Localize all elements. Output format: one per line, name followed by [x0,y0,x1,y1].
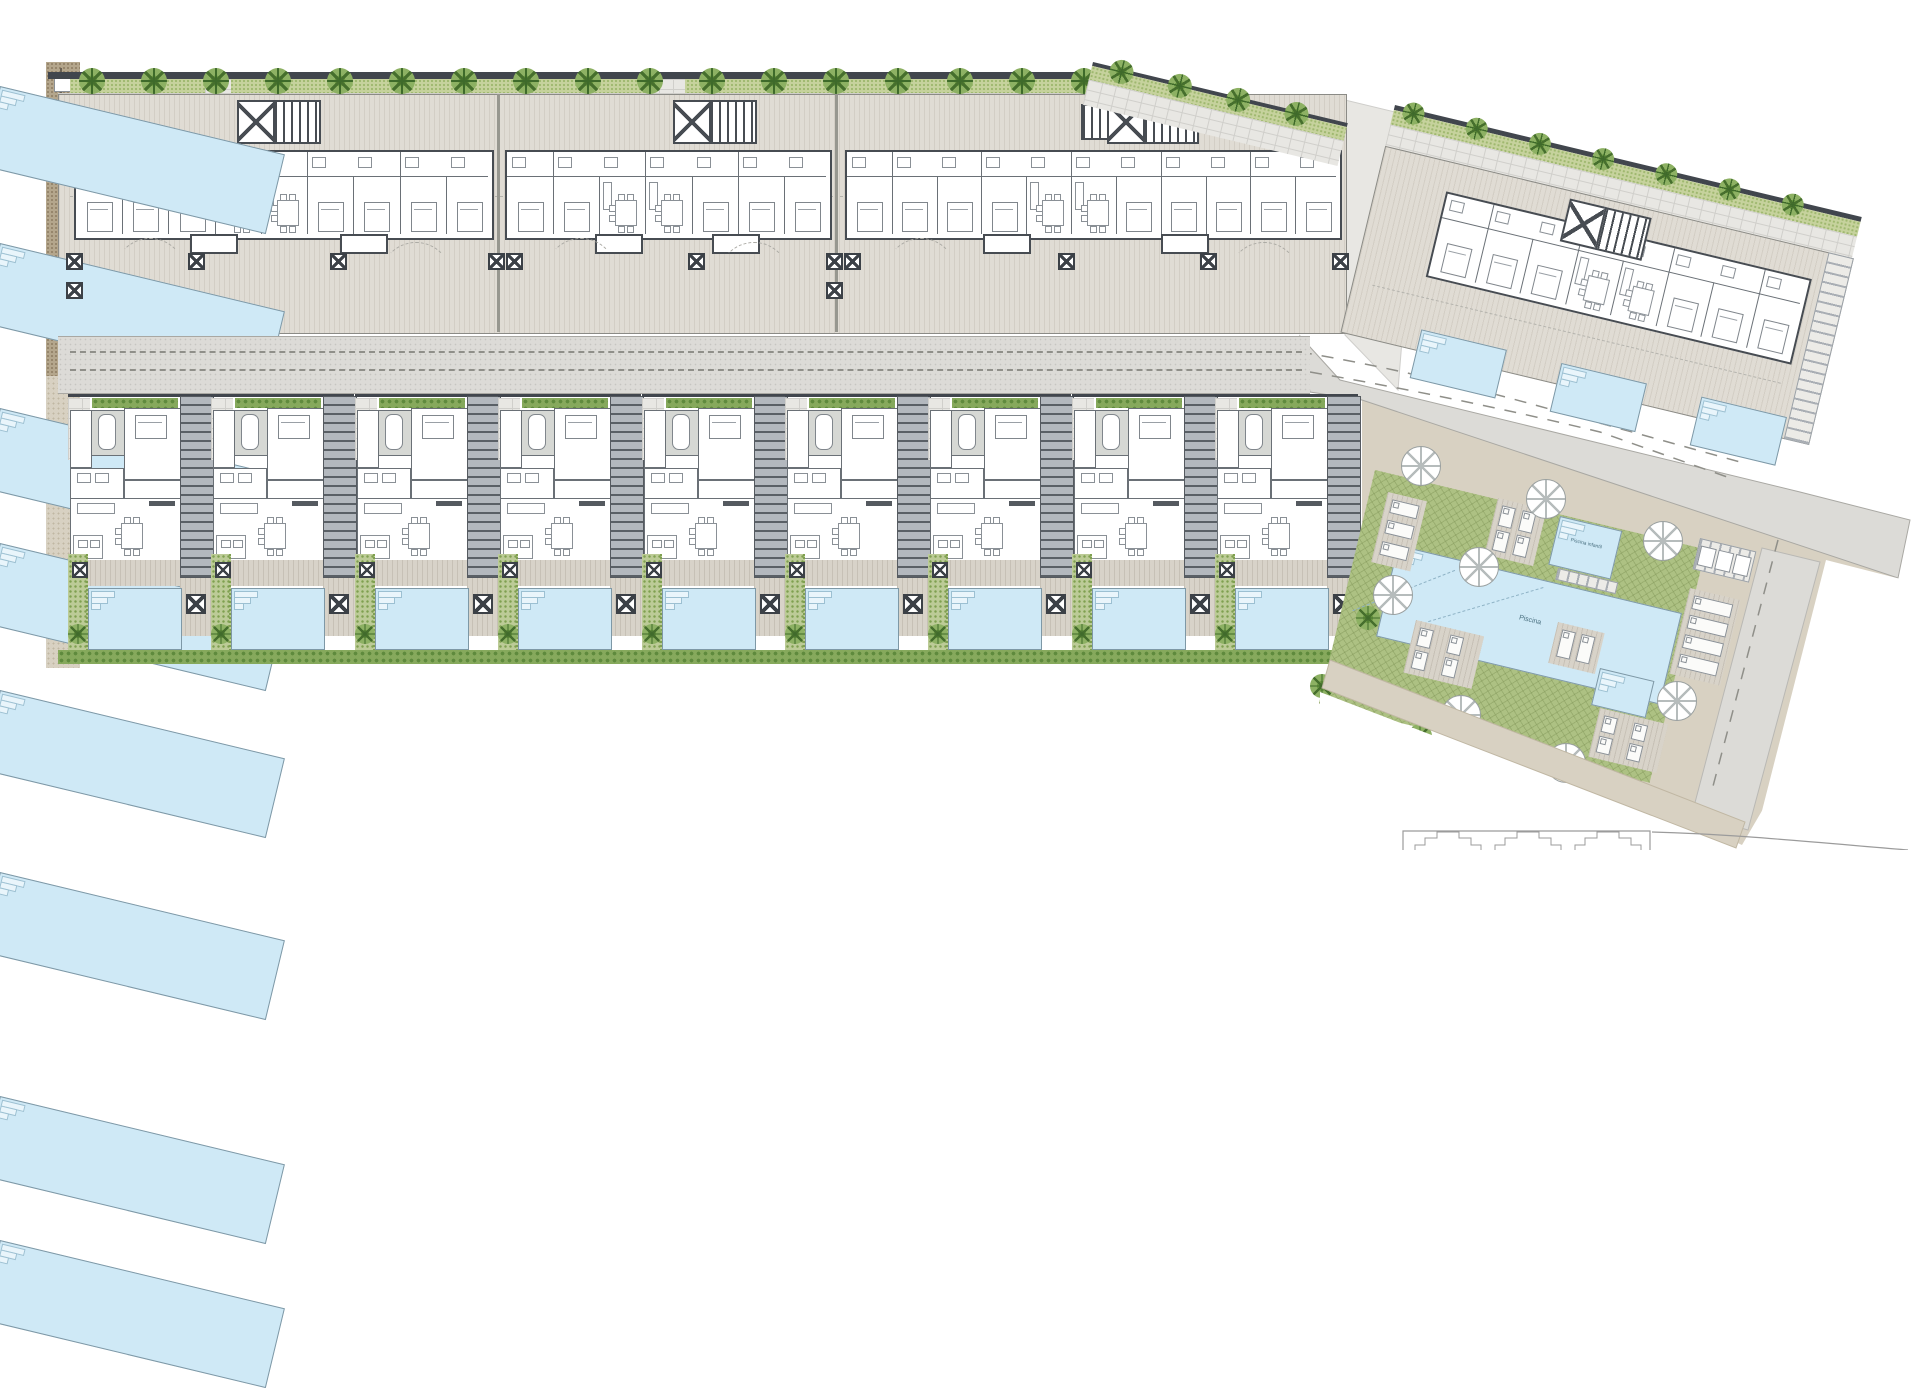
lounger-pillow [1582,636,1589,643]
palm-tree-icon [1310,674,1334,698]
palm-tree-icon [885,68,911,94]
living-bump [1161,234,1209,254]
sofa-icon [937,503,975,514]
pool-steps [1699,412,1710,421]
townhouse-unit-5 [642,394,785,668]
townhouse-pool [88,588,182,650]
sink-icon [508,540,518,548]
palm-tree-icon [575,68,601,94]
bath-fixture [942,157,956,168]
bedroom [1128,408,1188,480]
outdoor-shower [760,594,780,614]
tv-unit [1296,501,1322,506]
bed-pillow [568,418,592,423]
sink-icon [795,540,805,548]
chair-icon [554,549,561,556]
interior-wall [1250,152,1251,234]
column-marker [688,253,705,270]
chair-icon [276,549,283,556]
sofa-icon [220,503,258,514]
pool-steps [951,603,961,610]
bench-icon [1697,546,1717,569]
column-marker [826,282,843,299]
chair-icon [1119,528,1126,535]
chair-icon [655,215,662,222]
chair-icon [267,549,274,556]
dining-table-icon [615,200,637,226]
hall-bathroom [787,468,841,500]
sun-lounger-icon [1686,615,1728,638]
terrace-arc [718,242,790,314]
bath-fixture [312,157,326,168]
private-pool [0,1096,285,1244]
bath-fixture [1099,473,1113,483]
bath-fixture [1449,200,1465,214]
apartment-block-3 [845,150,1342,240]
chair-icon [402,528,409,535]
bath-fixture [512,157,526,168]
tv-unit [723,501,749,506]
umbrella-icon [1657,681,1697,721]
chair-icon [664,226,671,233]
chair-icon [1636,281,1644,289]
terrace-arc [1228,242,1300,314]
chair-icon [1054,226,1061,233]
interior-wall [937,176,938,234]
umbrella-icon [1459,547,1499,587]
chair-icon [850,549,857,556]
townhouse-pool [231,588,325,650]
bedroom [841,408,901,480]
bed-icon [1126,202,1152,232]
palm-tree-icon [265,68,291,94]
bed-icon [1282,415,1314,439]
living-room [357,498,471,562]
chair-icon [707,549,714,556]
chair-icon [618,194,625,201]
chair-icon [664,194,671,201]
bed-pillow [1309,205,1327,210]
bedroom [554,408,614,480]
bed-pillow [1720,312,1739,321]
bedroom [984,408,1044,480]
chair-icon [975,538,982,545]
pool-steps [91,603,101,610]
outdoor-shower [473,594,493,614]
bath-fixture [558,157,572,168]
bathtub-icon [672,414,690,450]
chair-icon [609,205,616,212]
bedroom [124,408,184,480]
bath-fixture [382,473,396,483]
chair-icon [280,194,287,201]
townhouse-unit-2 [211,394,354,668]
living-room [500,498,614,562]
palm-tree-icon [203,68,229,94]
living-room [1074,498,1188,562]
bed-icon [1306,202,1332,232]
chair-icon [1645,283,1653,291]
chair-icon [1262,528,1269,535]
chair-icon [1128,517,1135,524]
chair-icon [655,205,662,212]
sofa-icon [1224,503,1262,514]
chair-icon [609,215,616,222]
column-marker [1058,253,1075,270]
interior-wall [1206,176,1207,234]
living-bump [983,234,1031,254]
bed-pillow [1285,418,1309,423]
closet-room [1217,410,1239,468]
bed-pillow [712,418,736,423]
chair-icon [1128,549,1135,556]
chair-icon [420,549,427,556]
bench-icon [1714,550,1734,573]
palm-tree-icon [761,68,787,94]
pool-steps [1238,603,1248,610]
lounger-pillow [1415,652,1422,659]
dining-table-icon [551,523,573,549]
sofa-icon [794,503,832,514]
chair-icon [554,517,561,524]
pool-steps [665,603,675,610]
side-stair [467,396,501,578]
bath-fixture [1224,473,1238,483]
wardrobe [411,480,471,500]
column-marker [188,253,205,270]
hob-icon [950,540,960,548]
sun-lounger-icon [1389,499,1419,519]
bath-fixture [77,473,91,483]
palm-tree-icon [1356,606,1380,630]
front-hedge [522,398,608,408]
bath-fixture [95,473,109,483]
front-hedge [809,398,895,408]
lounger-pillow [1605,718,1612,725]
palm-tree-icon [823,68,849,94]
hall-bathroom [500,468,554,500]
lounger-pillow [1445,659,1452,666]
townhouse-unit-8 [1072,394,1215,668]
chair-icon [1600,272,1608,280]
bath-fixture [852,157,866,168]
private-pool [0,1240,285,1388]
sun-lounger-icon [1626,743,1644,763]
chair-icon [115,538,122,545]
chair-icon [124,549,131,556]
wardrobe [554,480,614,500]
townhouse-unit-3 [355,394,498,668]
sun-lounger-icon [1556,629,1576,659]
chair-icon [1081,215,1088,222]
palm-tree-icon [141,68,167,94]
chair-icon [627,226,634,233]
chair-icon [1637,314,1645,322]
palm-tree-icon [79,68,105,94]
deck-column [1076,562,1092,578]
side-stair [323,396,357,578]
elevator-icon [237,100,275,144]
chair-icon [258,538,265,545]
bed-icon [1531,265,1563,300]
bed-icon [457,202,483,232]
bed-pillow [425,418,449,423]
terrace-arc [380,242,452,314]
interior-wall [1026,176,1027,234]
column-marker [826,253,843,270]
living-bump [190,234,238,254]
front-hedge [1239,398,1325,408]
sink-icon [938,540,948,548]
dining-table-icon [1125,523,1147,549]
terrace-arc [885,238,957,310]
front-hedge [379,398,465,408]
lounger-pillow [1393,502,1400,509]
closet-room [1074,410,1096,468]
pool-steps [0,258,9,267]
sun-lounger-icon [1596,736,1614,756]
bed-icon [1440,243,1472,278]
bath-fixture [1765,276,1781,290]
townhouse-unit-4 [498,394,641,668]
bed-icon [422,415,454,439]
hob-icon [377,540,387,548]
chair-icon [280,226,287,233]
chair-icon [1099,194,1106,201]
interior-wall [507,176,826,177]
sun-lounger-icon [1512,534,1531,558]
pool-steps [378,603,388,610]
interior-wall [553,152,554,234]
wardrobe [1128,480,1188,500]
interior-wall [1071,152,1072,234]
hall-bathroom [357,468,411,500]
interior-wall [784,176,785,234]
palm-tree-icon [355,624,375,644]
chair-icon [1045,226,1052,233]
bed-icon [709,415,741,439]
bed-icon [749,202,775,232]
side-stair [610,396,644,578]
palm-tree-icon [642,624,662,644]
chair-icon [1592,303,1600,311]
lounger-pillow [1421,630,1428,637]
chair-icon [420,517,427,524]
pool-steps [0,423,9,432]
pool-steps [0,1255,9,1264]
tv-unit [149,501,175,506]
bed-icon [703,202,729,232]
dining-table-icon [277,200,299,226]
hall-bathroom [213,468,267,500]
bed-pillow [321,205,339,210]
interior-wall [692,176,693,234]
hall-bathroom [70,468,124,500]
bed-icon [518,202,544,232]
bed-pillow [905,205,923,210]
bed-pillow [860,205,878,210]
chair-icon [258,528,265,535]
bed-pillow [752,205,770,210]
front-hedge [1096,398,1182,408]
bath-fixture [405,157,419,168]
hob-icon [90,540,100,548]
chair-icon [984,517,991,524]
road-center-dash [70,369,1302,371]
townhouse-pool [518,588,612,650]
hob-icon [1094,540,1104,548]
pool-steps [0,1111,9,1120]
bathtub-icon [815,414,833,450]
bath-fixture [743,157,757,168]
pool-steps [1095,603,1105,610]
side-stair [1184,396,1218,578]
bed-icon [992,202,1018,232]
terrace-arc [114,238,186,310]
interior-wall [400,152,401,234]
column-marker [506,253,523,270]
dining-table-icon [1087,200,1109,226]
closet-room [213,410,235,468]
bench-icon [1732,554,1752,577]
bedroom [411,408,471,480]
bed-icon [852,415,884,439]
side-stair [754,396,788,578]
deck-column [359,562,375,578]
lounger-pillow [1563,632,1570,639]
block-divider [497,94,500,332]
bed-pillow [1219,205,1237,210]
chair-icon [841,549,848,556]
bed-pillow [138,418,162,423]
bed-pillow [90,205,108,210]
umbrella-icon [1643,521,1683,561]
chair-icon [832,538,839,545]
chair-icon [411,517,418,524]
closet-room [787,410,809,468]
bath-fixture [697,157,711,168]
chair-icon [1577,288,1585,296]
boundary-hedge-bottom [58,650,1332,664]
sun-lounger-icon [1677,654,1719,677]
bath-fixture [1121,157,1135,168]
bed-pillow [1675,301,1694,310]
bath-fixture [669,473,683,483]
dining-table-icon [408,523,430,549]
pool-steps [1559,378,1570,387]
bath-fixture [897,157,911,168]
tv-unit [292,501,318,506]
chair-icon [698,517,705,524]
sun-lounger-icon [1631,722,1649,742]
column-marker [330,253,347,270]
chair-icon [1119,538,1126,545]
dining-table-icon [1042,200,1064,226]
sofa-icon [77,503,115,514]
interior-wall [1295,176,1296,234]
closet-room [357,410,379,468]
bed-pillow [1449,247,1468,256]
living-room [930,498,1044,562]
lounger-pillow [1503,508,1510,515]
interior-wall [847,176,1336,177]
closet-room [644,410,666,468]
bed-pillow [995,205,1013,210]
chair-icon [850,517,857,524]
tv-unit [1009,501,1035,506]
pool-steps [1419,345,1430,354]
bed-pillow [1539,268,1558,277]
dining-table-icon [1627,286,1654,316]
hall-bathroom [644,468,698,500]
interior-wall [1116,176,1117,234]
elevator-icon [673,100,711,144]
bed-icon [1261,202,1287,232]
chair-icon [984,549,991,556]
palm-tree-icon [1009,68,1035,94]
bed-pillow [414,205,432,210]
dining-table-icon [981,523,1003,549]
chair-icon [1036,215,1043,222]
chair-icon [1137,549,1144,556]
bath-fixture [364,473,378,483]
outdoor-shower [903,594,923,614]
column-marker [66,253,83,270]
closet-room [930,410,952,468]
column-marker [66,282,83,299]
sink-icon [78,540,88,548]
chair-icon [707,517,714,524]
chair-icon [689,538,696,545]
dining-table-icon [264,523,286,549]
front-hedge [952,398,1038,408]
bath-fixture [1675,254,1691,268]
chair-icon [1054,194,1061,201]
chair-icon [133,517,140,524]
chair-icon [673,226,680,233]
pool-steps [0,887,9,896]
bath-fixture [1076,157,1090,168]
bath-fixture [1031,157,1045,168]
chair-icon [1625,289,1633,297]
palm-tree-icon [1408,724,1432,748]
sun-lounger-icon [1492,530,1511,554]
sun-lounger-icon [1498,505,1517,529]
chair-icon [563,549,570,556]
chair-icon [993,549,1000,556]
chair-icon [1591,270,1599,278]
palm-tree-icon [451,68,477,94]
bed-icon [135,415,167,439]
bath-fixture [1211,157,1225,168]
lounger-pillow [1388,522,1395,529]
bed-pillow [367,205,385,210]
chair-icon [289,226,296,233]
bath-fixture [451,157,465,168]
sofa-icon [1081,503,1119,514]
bed-pillow [460,205,478,210]
chair-icon [1262,538,1269,545]
interior-wall [981,152,982,234]
bedroom [698,408,758,480]
lounger-pillow [1630,745,1637,752]
sofa-icon [364,503,402,514]
bath-fixture [1720,265,1736,279]
bath-fixture [358,157,372,168]
dining-table-icon [695,523,717,549]
hob-icon [664,540,674,548]
hob-icon [233,540,243,548]
